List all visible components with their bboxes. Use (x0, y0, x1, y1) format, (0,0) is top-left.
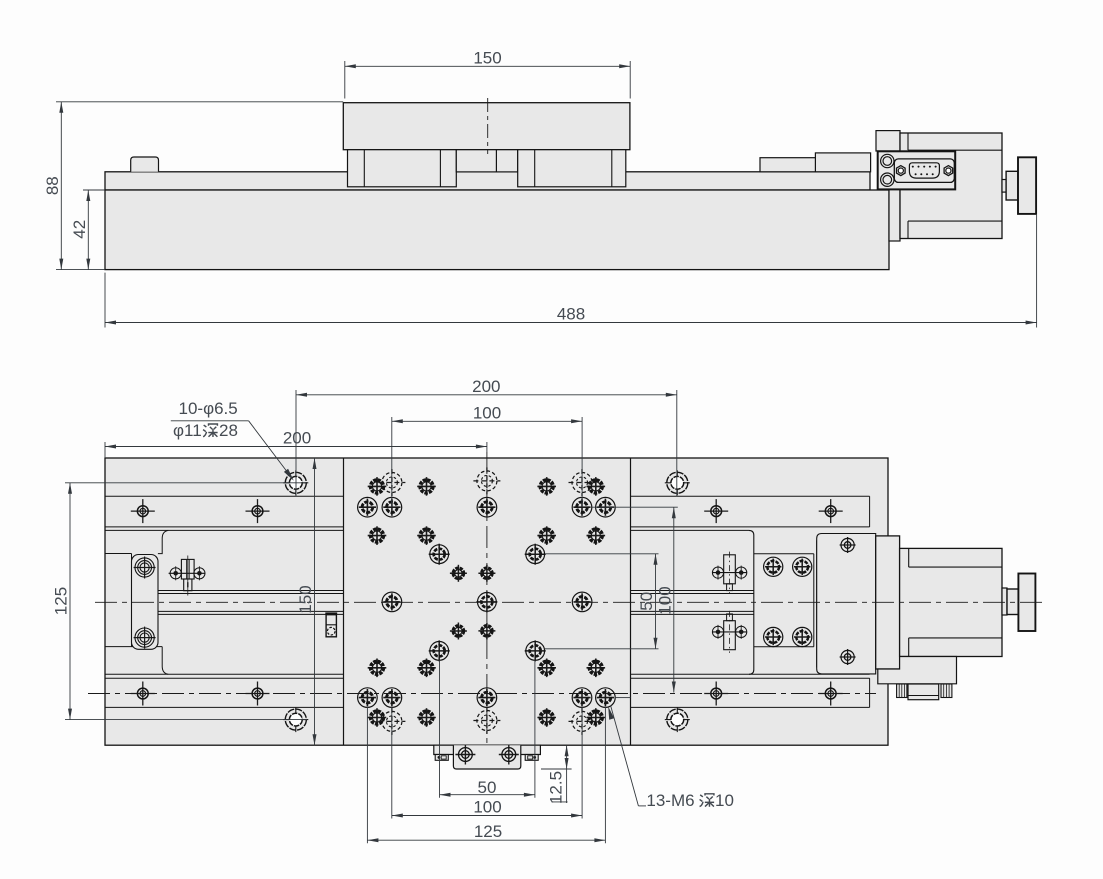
svg-text:10: 10 (715, 791, 734, 810)
svg-text:13-M6: 13-M6 (646, 791, 694, 810)
svg-text:200: 200 (283, 429, 311, 448)
svg-text:12.5: 12.5 (547, 771, 566, 804)
svg-text:88: 88 (43, 176, 62, 195)
svg-text:150: 150 (473, 48, 501, 67)
svg-text:125: 125 (52, 587, 71, 615)
svg-text:100: 100 (655, 586, 674, 614)
svg-text:42: 42 (70, 220, 89, 239)
svg-text:150: 150 (296, 585, 315, 613)
svg-text:125: 125 (474, 822, 502, 841)
svg-text:10-φ6.5: 10-φ6.5 (179, 399, 238, 418)
svg-text:100: 100 (473, 403, 501, 422)
svg-text:28: 28 (219, 421, 238, 440)
svg-text:50: 50 (478, 778, 497, 797)
svg-text:200: 200 (472, 377, 500, 396)
svg-text:100: 100 (473, 797, 501, 816)
svg-text:488: 488 (557, 305, 585, 324)
svg-text:50: 50 (637, 592, 656, 611)
svg-text:φ11: φ11 (173, 421, 202, 440)
